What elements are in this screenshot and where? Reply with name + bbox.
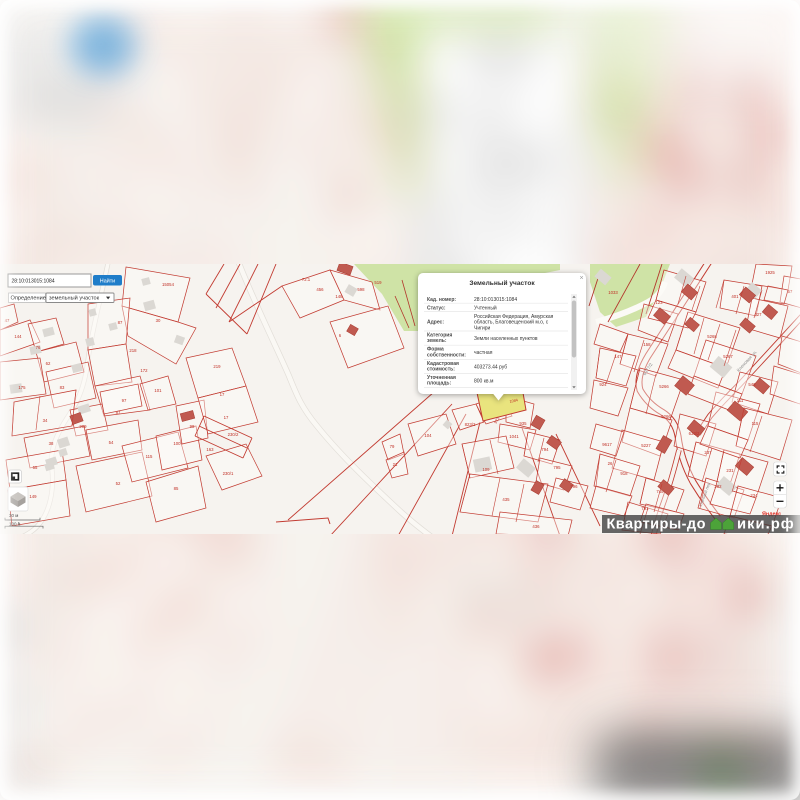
svg-text:Квартиры-до: Квартиры-до (607, 517, 706, 533)
svg-text:800 кв.м: 800 кв.м (474, 378, 494, 384)
svg-text:403273.44 руб: 403273.44 руб (474, 364, 507, 370)
svg-text:98: 98 (190, 424, 195, 429)
svg-text:401: 401 (731, 294, 739, 299)
svg-text:219: 219 (213, 364, 221, 369)
svg-text:101: 101 (154, 388, 162, 393)
svg-text:земельный участок: земельный участок (49, 295, 100, 302)
svg-text:28:10:013015:1084: 28:10:013015:1084 (12, 279, 55, 285)
svg-text:109: 109 (482, 467, 490, 472)
svg-text:57: 57 (788, 289, 793, 294)
svg-text:54: 54 (109, 440, 114, 445)
svg-text:ики.рф: ики.рф (737, 517, 795, 533)
svg-text:55: 55 (33, 465, 38, 470)
svg-text:76: 76 (36, 345, 41, 350)
svg-text:148: 148 (335, 294, 343, 299)
svg-text:796: 796 (570, 484, 578, 489)
svg-text:435: 435 (502, 497, 510, 502)
svg-text:794: 794 (541, 447, 549, 452)
svg-text:собственности:: собственности: (427, 351, 466, 358)
svg-text:79: 79 (390, 444, 395, 449)
svg-text:231: 231 (726, 468, 734, 473)
svg-text:9617: 9617 (602, 442, 612, 447)
svg-text:частная: частная (474, 350, 493, 356)
svg-text:546: 546 (748, 382, 756, 387)
svg-text:Чигири: Чигири (474, 325, 491, 331)
svg-text:21: 21 (393, 462, 398, 467)
svg-text:17: 17 (224, 415, 229, 420)
svg-text:918: 918 (620, 471, 628, 476)
svg-text:Найти: Найти (100, 277, 115, 284)
svg-text:175: 175 (18, 385, 26, 390)
svg-text:519: 519 (374, 280, 382, 285)
svg-text:633/2: 633/2 (689, 431, 700, 436)
svg-text:52: 52 (116, 481, 121, 486)
svg-text:площадь:: площадь: (427, 381, 451, 387)
svg-text:234: 234 (750, 493, 758, 498)
svg-text:823/2: 823/2 (465, 422, 476, 427)
svg-text:100: 100 (173, 441, 181, 446)
svg-text:935: 935 (519, 421, 527, 426)
svg-text:×: × (580, 275, 584, 282)
svg-text:232: 232 (714, 484, 722, 489)
svg-text:земель:: земель: (427, 338, 447, 344)
svg-text:83: 83 (60, 385, 65, 390)
svg-text:28:10:013015:1084: 28:10:013015:1084 (474, 297, 517, 303)
svg-text:100 ft: 100 ft (9, 522, 21, 527)
svg-text:26: 26 (608, 461, 613, 466)
svg-text:5266: 5266 (661, 414, 671, 419)
svg-text:30: 30 (156, 318, 161, 323)
svg-text:5267: 5267 (723, 354, 733, 359)
svg-text:149: 149 (29, 494, 37, 499)
svg-text:1925: 1925 (765, 270, 775, 275)
svg-text:Земли населенных пунктов: Земли населенных пунктов (474, 336, 538, 342)
svg-text:163: 163 (206, 447, 214, 452)
svg-text:85: 85 (174, 486, 179, 491)
svg-text:795: 795 (553, 465, 561, 470)
svg-text:стоимость:: стоимость: (427, 367, 455, 373)
svg-text:Земельный участок: Земельный участок (469, 279, 535, 287)
svg-text:Учтенный: Учтенный (474, 305, 497, 312)
svg-text:230/2: 230/2 (228, 432, 239, 437)
svg-text:218: 218 (129, 348, 137, 353)
svg-text:97: 97 (122, 398, 127, 403)
svg-text:598: 598 (357, 287, 365, 292)
svg-text:34: 34 (43, 418, 48, 423)
svg-text:144: 144 (14, 334, 22, 339)
svg-text:104: 104 (424, 433, 432, 438)
svg-text:47: 47 (5, 318, 10, 323)
svg-text:230/1: 230/1 (223, 471, 234, 476)
svg-text:115: 115 (146, 454, 153, 459)
svg-text:111: 111 (737, 398, 744, 403)
svg-text:456: 456 (316, 287, 324, 292)
svg-text:924: 924 (599, 382, 607, 387)
svg-text:1033: 1033 (608, 290, 618, 295)
svg-text:5266: 5266 (659, 384, 669, 389)
svg-text:30 м: 30 м (9, 513, 18, 518)
svg-text:209: 209 (79, 424, 87, 429)
svg-text:87: 87 (116, 410, 121, 415)
svg-text:62: 62 (46, 361, 51, 366)
svg-text:436: 436 (532, 524, 540, 529)
svg-text:38: 38 (49, 441, 54, 446)
svg-text:87: 87 (118, 320, 123, 325)
svg-text:172: 172 (140, 368, 148, 373)
svg-text:Определение: Определение (11, 296, 46, 302)
svg-text:5227: 5227 (641, 443, 651, 448)
svg-text:123: 123 (655, 300, 663, 305)
svg-text:Кад. номер:: Кад. номер: (427, 297, 456, 303)
svg-text:115: 115 (752, 421, 759, 426)
svg-text:Статус:: Статус: (427, 306, 446, 312)
svg-text:1041: 1041 (509, 434, 519, 439)
svg-text:Адрес:: Адрес: (427, 320, 444, 326)
svg-text:15054: 15054 (162, 282, 175, 287)
svg-text:72:1: 72:1 (302, 277, 311, 282)
svg-text:17: 17 (220, 392, 225, 397)
svg-text:158: 158 (643, 342, 651, 347)
